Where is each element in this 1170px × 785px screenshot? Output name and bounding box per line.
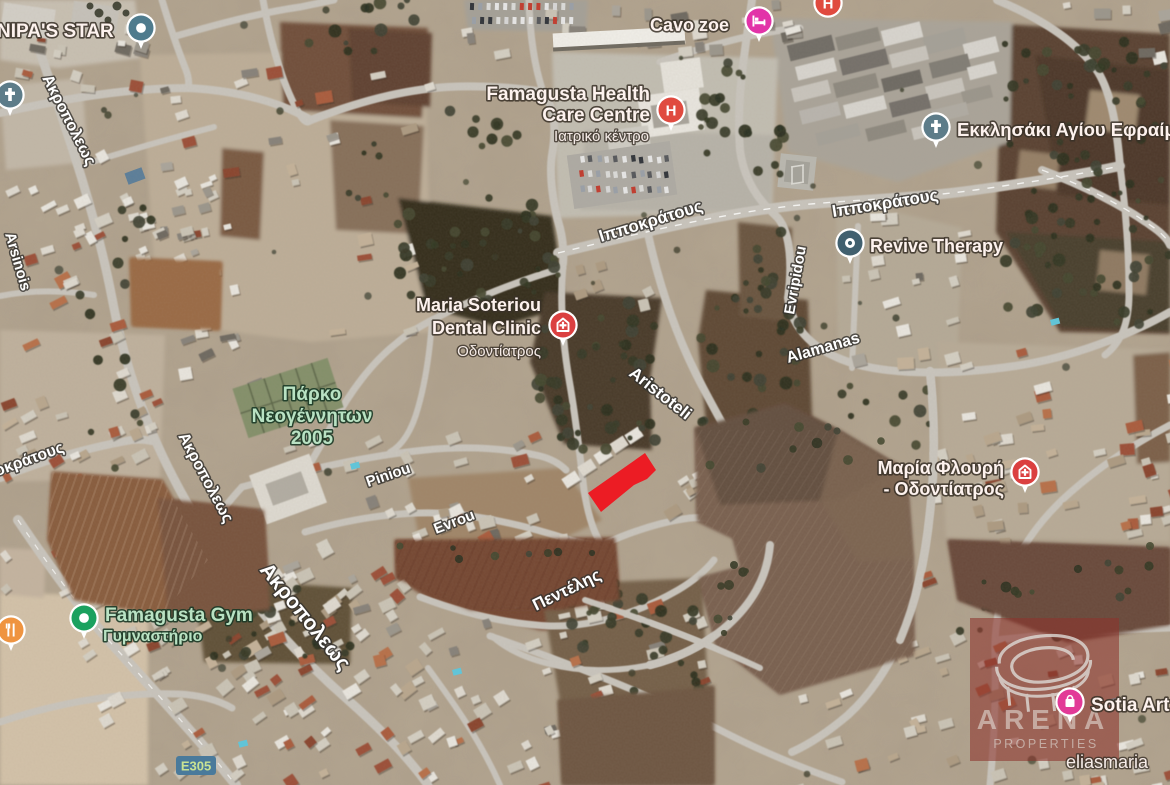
svg-text:Famagusta Gym: Famagusta Gym (105, 605, 253, 626)
svg-text:Οδοντίατρος: Οδοντίατρος (457, 343, 541, 360)
svg-text:Revive Therapy: Revive Therapy (870, 236, 1003, 256)
svg-text:eliasmaria: eliasmaria (1066, 752, 1149, 772)
svg-text:Cavo zoe: Cavo zoe (650, 15, 729, 35)
svg-text:Ιατρικό κέντρο: Ιατρικό κέντρο (554, 128, 649, 145)
svg-text:PROPERTIES: PROPERTIES (993, 737, 1098, 751)
svg-text:E305: E305 (181, 759, 211, 774)
svg-text:NIPA'S STAR: NIPA'S STAR (0, 21, 114, 42)
svg-text:Μαρία Φλουρή- Οδοντίατρος: Μαρία Φλουρή- Οδοντίατρος (878, 458, 1004, 499)
svg-text:H: H (666, 103, 677, 120)
svg-text:H: H (823, 0, 834, 13)
svg-text:Sotia Art: Sotia Art (1091, 695, 1170, 716)
svg-text:Εκκλησάκι Αγίου Εφραίμ: Εκκλησάκι Αγίου Εφραίμ (957, 119, 1170, 140)
svg-text:Γυμναστήριο: Γυμναστήριο (103, 628, 203, 645)
